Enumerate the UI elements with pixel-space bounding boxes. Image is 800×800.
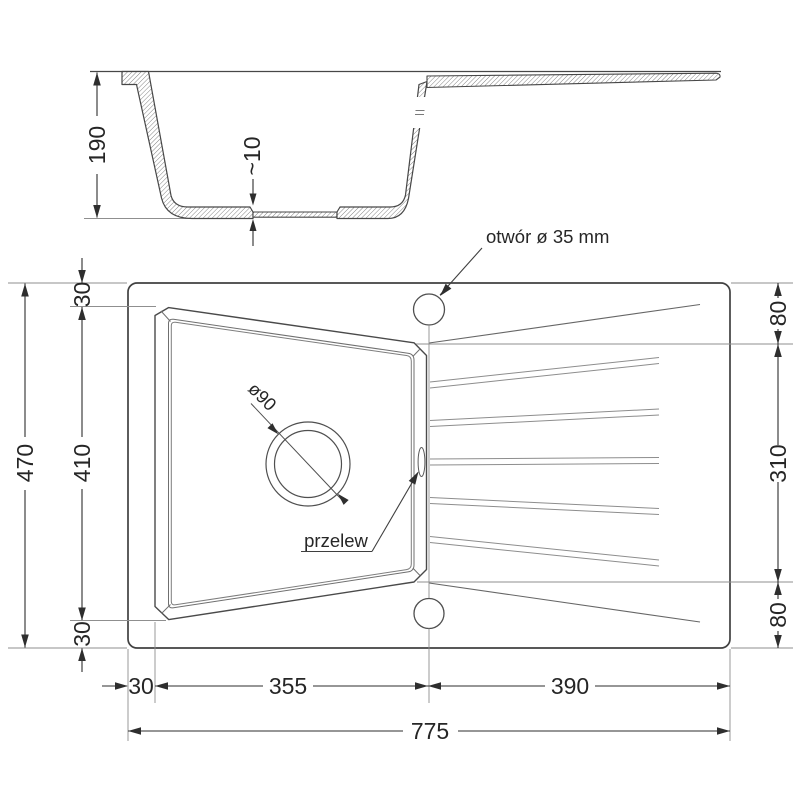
arrow-390-right [717,682,730,690]
arrow-390-left [428,682,441,690]
arrow-310-up [774,344,782,357]
arrow-470-bottom [21,635,29,648]
tap-hole [414,294,445,325]
arrow-30bot-right [115,682,128,690]
technical-drawing-sink: 190 ~10 [0,0,800,800]
arrow-410-bottom [78,608,86,621]
dim-80-top: 80 [765,301,791,327]
arrow-80b-up [774,582,782,595]
arrow-10-up [250,219,257,231]
dim-410: 410 [69,444,95,482]
dim-775: 775 [411,718,449,744]
arrow-775-right [717,727,730,735]
arrow-80t-up [774,283,782,296]
arrow-190-top [93,73,101,86]
label-overflow: przelew [304,530,368,551]
label-hole-note: otwór ø 35 mm [486,226,609,247]
arrow-355-right [415,682,428,690]
drawing-svg: 190 ~10 [0,0,800,800]
arrow-80b-down [774,635,782,648]
dim-approx-10: ~10 [239,136,265,175]
arrow-30t-down [78,270,86,283]
arrow-775-left [128,727,141,735]
dim-80-bottom: 80 [765,602,791,628]
arrow-10-down [250,194,257,206]
arrow-80t-down [774,331,782,344]
arrow-30b-up [78,648,86,661]
overflow-slot [418,448,425,477]
dim-30-bottom-row: 30 [128,673,154,699]
section-right-wall [337,82,427,219]
arrow-190-bottom [93,205,101,218]
dim-470: 470 [12,444,38,482]
arrow-410-top [78,307,86,320]
dim-30-top: 30 [69,282,95,308]
section-dimensions [97,73,253,247]
arrow-310-down [774,569,782,582]
arrow-470-top [21,284,29,297]
section-drain-recess [253,212,337,217]
dim-310: 310 [765,444,791,482]
dim-30-bottom: 30 [69,621,95,647]
second-hole [414,599,444,629]
dim-355: 355 [269,673,307,699]
section-drainboard-slab [427,73,720,87]
dim-390: 390 [551,673,589,699]
section-left-wall [122,72,253,219]
section-overflow-gap [411,97,426,128]
cross-section-view [84,72,721,219]
arrow-355-left [155,682,168,690]
dim-190: 190 [84,126,110,164]
